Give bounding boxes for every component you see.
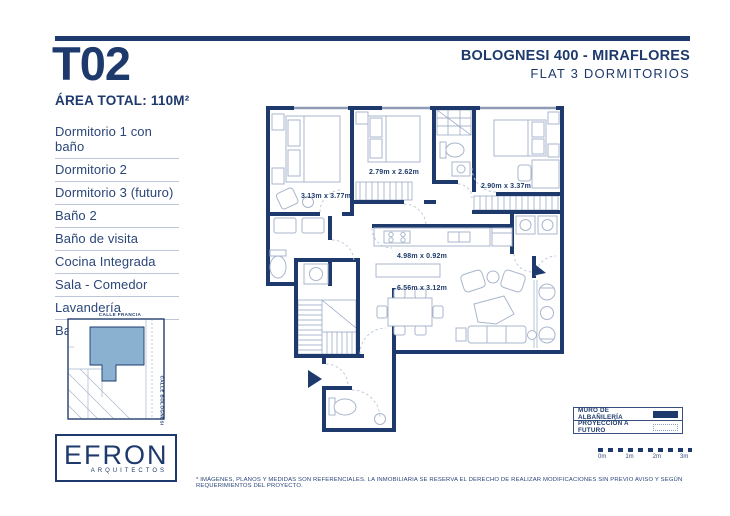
armchair <box>460 269 486 293</box>
legend-row: MURO DE ALBAÑILERÍA <box>574 408 682 420</box>
sink <box>274 218 296 233</box>
room-list-item: Sala - Comedor <box>55 274 179 297</box>
scale-tick: 2m <box>653 454 665 460</box>
nightstand <box>272 114 284 130</box>
project-name: BOLOGNESI 400 - MIRAFLORES <box>461 48 690 64</box>
architect-logo: EFRON ARQUITECTOS <box>55 434 177 482</box>
sofa <box>468 326 526 343</box>
unit-title: T02 <box>52 40 130 87</box>
scale-tick: 3m <box>680 454 692 460</box>
fridge <box>492 228 512 246</box>
room-list-item: Baño de visita <box>55 228 179 251</box>
room-list-item: Dormitorio 1 con baño <box>55 121 179 159</box>
legend: MURO DE ALBAÑILERÍA PROYECCIÓN A FUTURO <box>573 407 683 434</box>
scale-bar-dashes <box>598 448 692 452</box>
plan-sheet: T02 ÁREA TOTAL: 110M² BOLOGNESI 400 - MI… <box>0 0 730 516</box>
dim-cocina: 4.98m x 0.92m <box>397 253 447 260</box>
room-list-item: Baño 2 <box>55 205 179 228</box>
dim-dormitorio-3: 2.90m x 3.37m <box>481 183 531 190</box>
stove <box>384 231 410 243</box>
dim-sala-comedor: 6.56m x 3.12m <box>397 285 447 292</box>
balcony-chair <box>539 327 555 343</box>
coffee-table <box>474 296 514 324</box>
armchair <box>500 269 526 293</box>
legend-label: MURO DE ALBAÑILERÍA <box>578 407 653 421</box>
nightstand <box>548 112 559 124</box>
toilet-tank <box>440 142 446 158</box>
project-header: BOLOGNESI 400 - MIRAFLORES FLAT 3 DORMIT… <box>461 48 690 81</box>
logo-name: EFRON <box>57 442 175 469</box>
nightstand <box>356 112 368 124</box>
legend-label: PROYECCIÓN A FUTURO <box>578 420 653 434</box>
toilet <box>334 399 356 415</box>
kitchen-island <box>376 264 440 277</box>
scale-tick: 0m <box>598 454 610 460</box>
room-list-item: Dormitorio 2 <box>55 159 179 182</box>
room-list: Dormitorio 1 con baño Dormitorio 2 Dormi… <box>55 121 179 342</box>
unit-type: FLAT 3 DORMITORIOS <box>461 66 690 81</box>
street-label-bolognesi: CALLE BOLOGNESI <box>159 376 164 426</box>
side-table <box>456 328 466 341</box>
dining-table <box>388 298 432 326</box>
dim-dormitorio-2: 2.79m x 2.62m <box>369 169 419 176</box>
balcony-chair <box>539 284 555 300</box>
side-table <box>487 271 499 283</box>
site-location-map: CALLE FRANCIA CALLE <box>60 312 180 428</box>
balcony-door-leaf <box>532 262 546 276</box>
floor-plan: 3.13m x 3.77m 2.79m x 2.62m 2.90m x 3.37… <box>256 92 596 438</box>
armchair <box>275 187 298 210</box>
entry-arrow <box>308 370 322 388</box>
desk <box>532 160 559 188</box>
future-projection-swatch <box>653 424 678 431</box>
sink <box>302 218 324 233</box>
toilet <box>270 256 286 278</box>
desk-chair <box>518 165 531 181</box>
dim-dormitorio-1: 3.13m x 3.77m <box>301 193 351 200</box>
site-plan-drawing <box>60 317 172 423</box>
total-area-label: ÁREA TOTAL: 110M² <box>55 93 189 108</box>
scale-tick: 1m <box>625 454 637 460</box>
room-list-item: Cocina Integrada <box>55 251 179 274</box>
nightstand <box>548 144 559 157</box>
toilet-tank <box>270 250 286 256</box>
nightstand <box>272 168 284 184</box>
solid-wall-swatch <box>653 411 678 418</box>
balcony-table <box>541 307 554 320</box>
room-list-item: Dormitorio 3 (futuro) <box>55 182 179 205</box>
legend-row: PROYECCIÓN A FUTURO <box>574 420 682 433</box>
disclaimer-text: * IMÁGENES, PLANOS Y MEDIDAS SON REFEREN… <box>196 477 698 489</box>
scale-bar: 0m 1m 2m 3m <box>598 448 692 460</box>
top-rule <box>55 36 690 41</box>
logo-tagline: ARQUITECTOS <box>57 468 175 474</box>
floor-lamp <box>528 331 537 340</box>
toilet <box>446 143 464 157</box>
